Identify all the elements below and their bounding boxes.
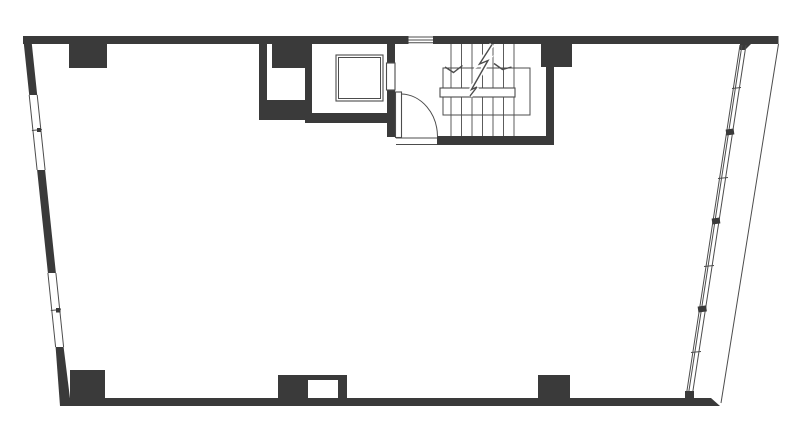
stairwell (440, 44, 530, 136)
stair-direction-arrow-left (445, 66, 463, 73)
left-window-upper (29, 95, 45, 170)
pier-top-left (69, 44, 107, 68)
top-wall-left-segment (23, 36, 409, 44)
bottom-wall (64, 398, 720, 406)
elevator-car-outer (336, 55, 383, 101)
pier-bottom-left (70, 370, 105, 398)
left-wall-middle-segment (37, 170, 56, 273)
elevator-shaft (336, 55, 395, 101)
elevator-stair-divider-upper (387, 44, 395, 63)
ribbon-window-right (685, 44, 751, 398)
elevator-stair-divider-lower (387, 90, 395, 137)
duct-chase (278, 375, 347, 398)
niche-corner-block (272, 44, 312, 68)
niche-west-wall (259, 44, 267, 104)
entry-door-leaf (396, 92, 402, 138)
stair-east-pier (541, 44, 572, 67)
top-wall-window (409, 36, 434, 44)
window-mullion-block (726, 128, 735, 135)
window-mullion-block (712, 217, 721, 224)
window-mullion-block (56, 308, 61, 313)
left-wall-corner-segment (56, 347, 71, 406)
elevator-west-wall (305, 68, 312, 113)
entry-door-swing-arc (402, 94, 438, 137)
stair-east-wall (546, 67, 554, 145)
right-facade-outer-edge-line (721, 44, 779, 403)
service-core-walls (259, 44, 572, 145)
entry-door (396, 92, 438, 145)
floor-plan-drawing (0, 0, 787, 436)
stair-direction-arrow-right (494, 64, 512, 70)
window-glazing-line (29, 95, 37, 170)
stair-bottom-wall (437, 136, 554, 145)
duct-chase-opening (308, 380, 338, 398)
window-mullion-block (698, 305, 707, 312)
window-glazing-line (37, 95, 45, 170)
left-window-lower (48, 273, 64, 347)
pier-bottom-right (538, 375, 570, 398)
window-base-block (685, 391, 694, 398)
window-mullion-block (37, 128, 41, 132)
elevator-door-panel (387, 63, 396, 90)
top-wall-right-segment (433, 36, 779, 44)
niche-bottom-wall (259, 100, 312, 120)
left-wall-upper-segment (23, 36, 37, 95)
elevator-bottom-wall (305, 113, 395, 123)
floor-plan-page (0, 0, 787, 436)
